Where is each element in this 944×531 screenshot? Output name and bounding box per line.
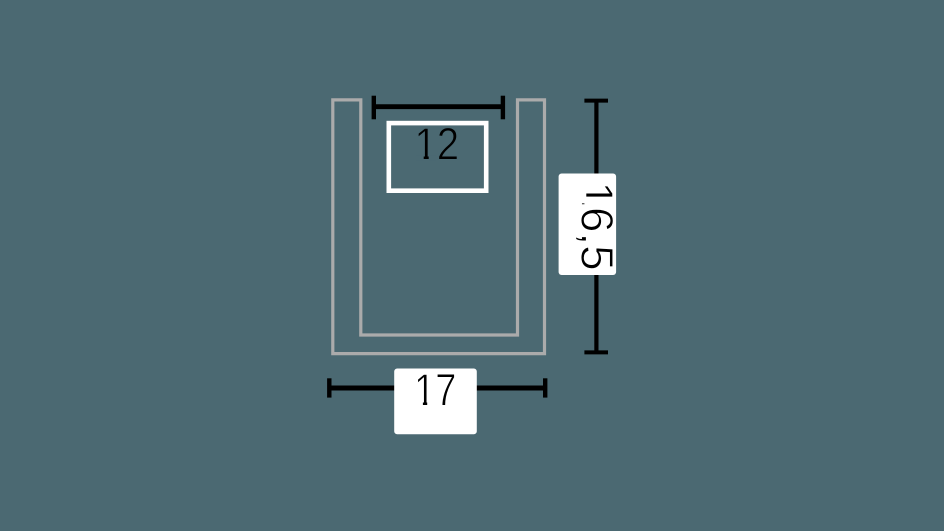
svg-text:16,5: 16,5	[572, 182, 623, 271]
svg-text:17: 17	[414, 365, 456, 416]
svg-text:12: 12	[414, 118, 459, 169]
